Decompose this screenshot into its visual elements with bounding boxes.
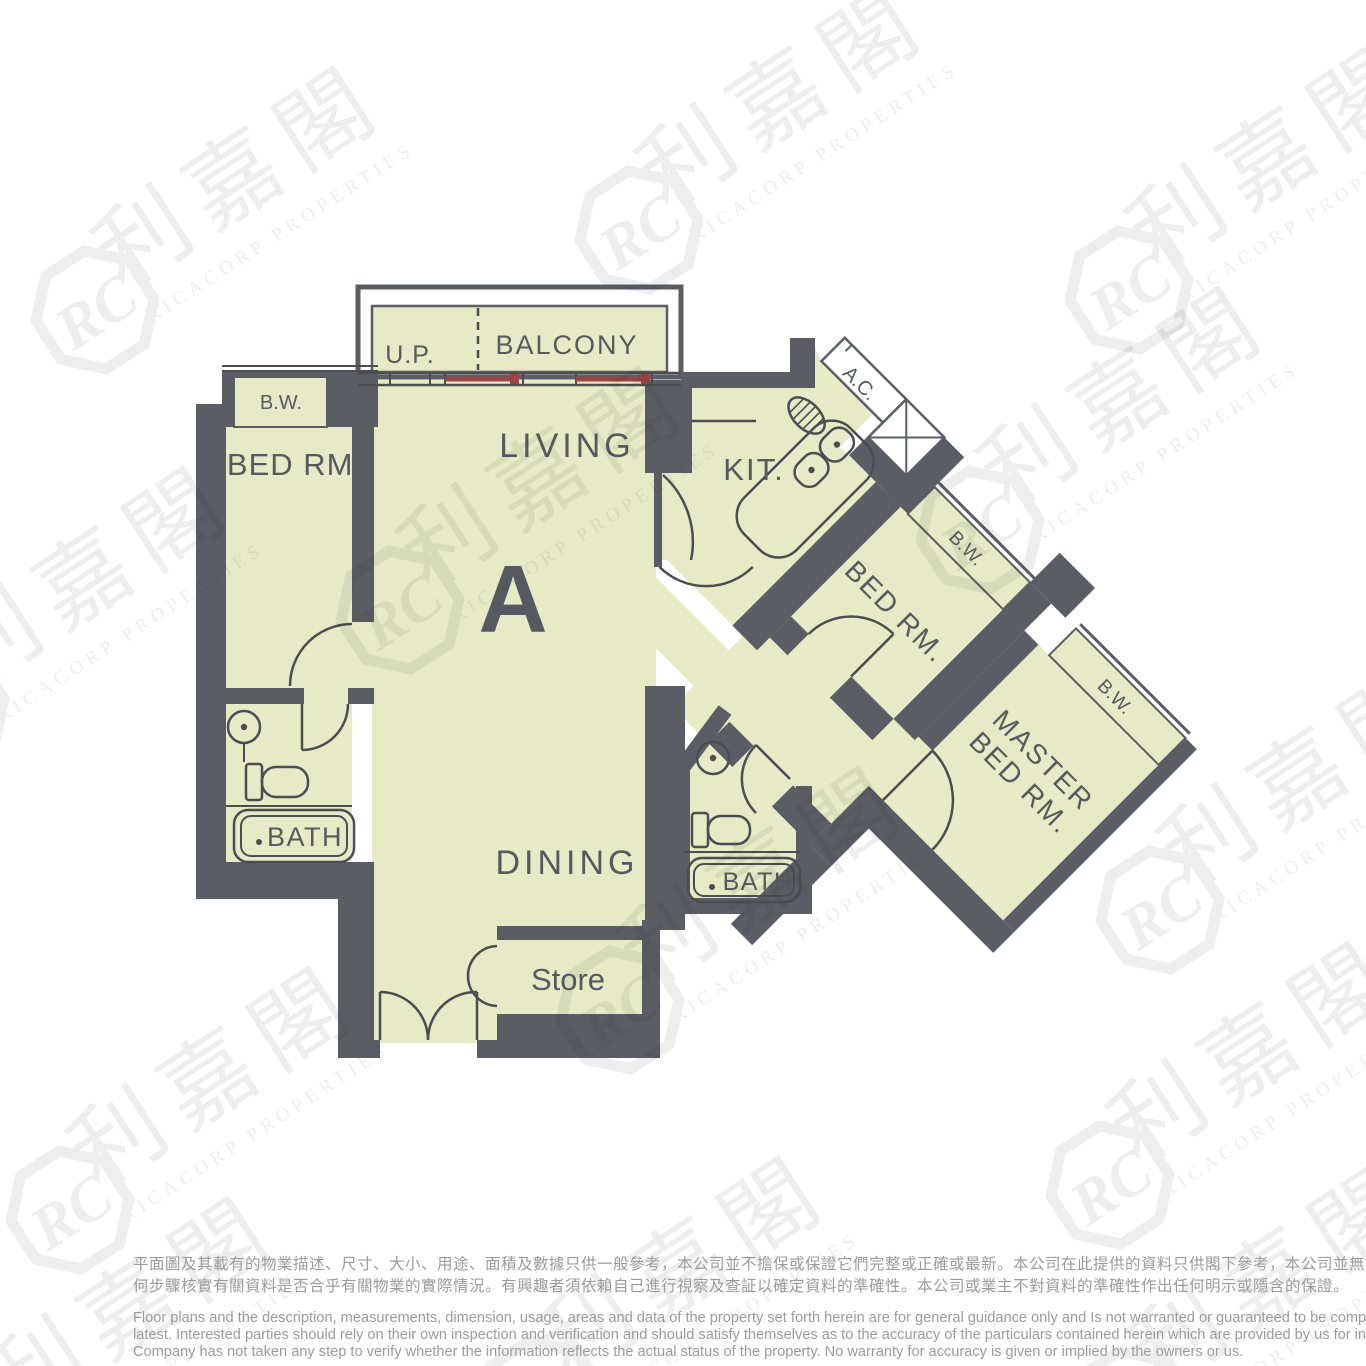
bathroom1-door-gap xyxy=(304,688,348,704)
floor-plan: RC 利嘉閣 RICACORP PROPERTIES xyxy=(0,0,1366,1366)
wall xyxy=(681,372,793,388)
disclaimer-zh-line-2: 何步驟核實有關資料是否合乎有關物業的實際情況。有興趣者須依賴自己進行視察及查証以… xyxy=(133,1274,1349,1296)
floor-plan-page: RC 利嘉閣 RICACORP PROPERTIES xyxy=(0,0,1366,1366)
balcony-label: BALCONY xyxy=(495,330,638,360)
wall xyxy=(196,862,352,899)
baywindow-outer-line xyxy=(222,366,378,371)
wall xyxy=(348,688,374,704)
bedroom1-label: BED RM. xyxy=(227,447,363,482)
disclaimer-zh-line-1: 平面圖及其載有的物業描述、尺寸、大小、用途、面積及數據只供一般參考，本公司並不擔… xyxy=(133,1252,1366,1274)
utility-platform-label: U.P. xyxy=(385,341,434,369)
disclaimer-en-line-1: Floor plans and the description, measure… xyxy=(133,1310,1366,1326)
wall xyxy=(226,688,304,704)
drain-dot xyxy=(256,839,262,845)
disclaimer-en-line-2: latest. Interested parties should rely o… xyxy=(133,1327,1366,1343)
dining-label: DINING xyxy=(496,844,639,882)
bathroom1-label: BATH xyxy=(267,822,343,852)
wall xyxy=(790,338,815,388)
disclaimer-en-line-3: Company has not taken any step to verify… xyxy=(133,1344,1243,1360)
window-red-mark xyxy=(510,374,519,384)
wall xyxy=(352,377,374,622)
kitchen-label: KIT. xyxy=(723,452,784,487)
bedroom1-baywindow-label: B.W. xyxy=(260,392,302,414)
